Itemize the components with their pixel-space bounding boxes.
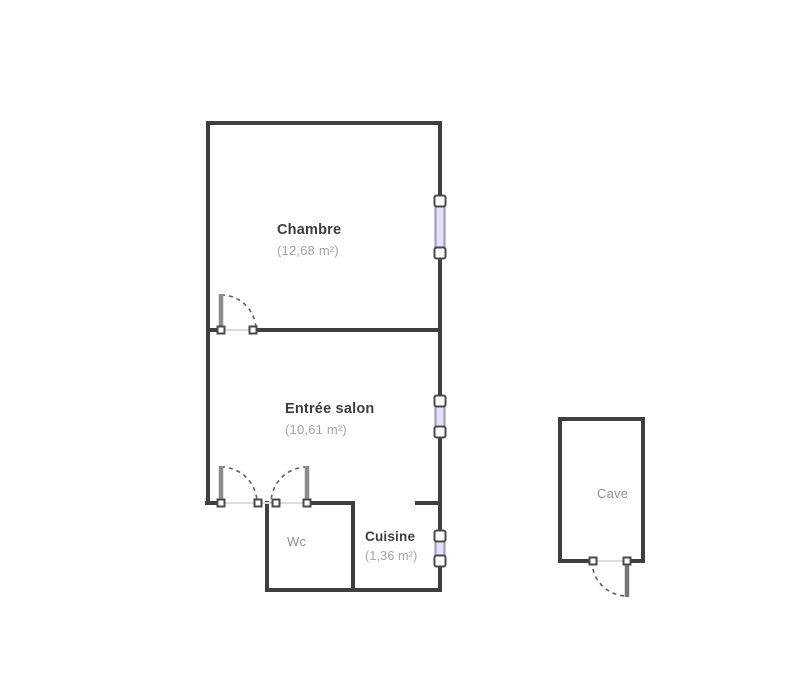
entry-right-door-arc xyxy=(271,467,307,503)
jamb-marker xyxy=(590,558,597,565)
floor-plan-drawing xyxy=(0,0,812,689)
jamb-marker xyxy=(624,558,631,565)
jamb-marker xyxy=(250,327,257,334)
room-area: (1,36 m²) xyxy=(365,548,418,564)
room-area: (12,68 m²) xyxy=(277,243,341,259)
jamb-marker xyxy=(218,327,225,334)
room-name: Chambre xyxy=(277,222,341,238)
apartment-walls xyxy=(205,123,643,590)
room-name: Wc xyxy=(287,534,306,550)
jamb-marker xyxy=(255,500,262,507)
entry-left-door-arc xyxy=(221,467,257,503)
room-label-chambre: Chambre (12,68 m²) xyxy=(277,222,341,259)
room-name: Cuisine xyxy=(365,529,418,545)
room-name: Entrée salon xyxy=(285,401,374,417)
chambre-door-arc xyxy=(221,295,256,330)
chambre-window-icon xyxy=(435,196,446,259)
jamb-marker xyxy=(273,500,280,507)
room-label-cave: Cave xyxy=(597,486,628,502)
floor-plan-canvas: Chambre (12,68 m²) Entrée salon (10,61 m… xyxy=(0,0,812,689)
door-thresholds xyxy=(221,330,627,561)
room-label-cuisine: Cuisine (1,36 m²) xyxy=(365,529,418,564)
door-leaves xyxy=(221,294,627,597)
room-label-wc: Wc xyxy=(287,534,306,550)
room-label-entree-salon: Entrée salon (10,61 m²) xyxy=(285,401,374,438)
door-swing-arcs xyxy=(221,295,627,596)
jamb-marker xyxy=(218,500,225,507)
outer-wall xyxy=(208,123,440,505)
room-area: (10,61 m²) xyxy=(285,422,374,438)
jamb-marker xyxy=(304,500,311,507)
salon-window-icon xyxy=(435,396,446,438)
room-name: Cave xyxy=(597,486,628,502)
cave-door-arc xyxy=(592,561,627,596)
cuisine-window-icon xyxy=(435,531,446,567)
door-jamb-markers xyxy=(218,327,631,565)
